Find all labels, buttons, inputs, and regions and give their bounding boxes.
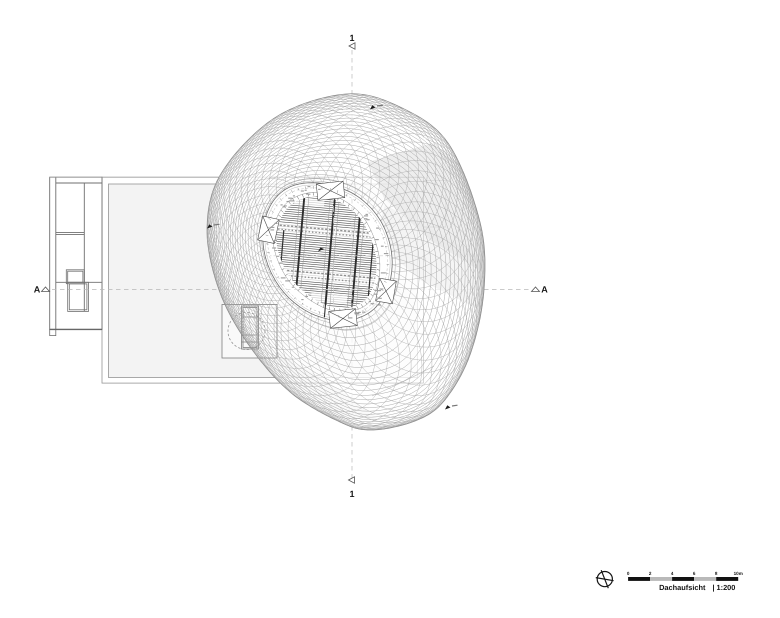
svg-text:2: 2 [649,571,652,576]
svg-text:|: | [713,583,715,592]
svg-text:6: 6 [693,571,696,576]
svg-text:A: A [34,285,41,295]
svg-text:10m: 10m [734,571,743,576]
svg-text:1:200: 1:200 [717,583,736,592]
svg-text:0: 0 [627,571,630,576]
svg-text:Dachaufsicht: Dachaufsicht [659,583,706,592]
svg-text:1: 1 [349,489,354,499]
svg-text:8: 8 [715,571,718,576]
svg-text:1: 1 [349,33,354,43]
svg-text:4: 4 [671,571,674,576]
svg-text:A: A [541,285,548,295]
